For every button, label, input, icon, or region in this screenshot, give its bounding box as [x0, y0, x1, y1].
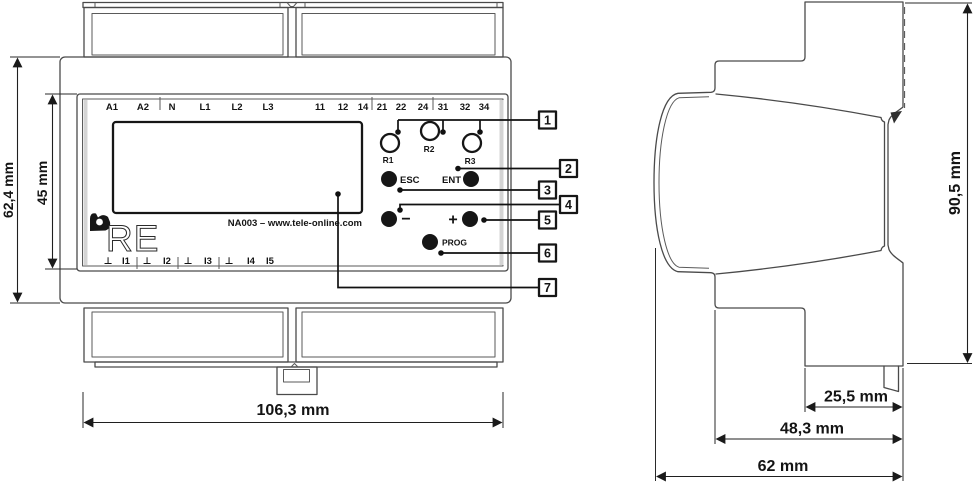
terminal-label: I5	[266, 256, 275, 267]
side-slant-faces	[716, 94, 885, 274]
terminal-label: 14	[358, 102, 369, 113]
relay-r1-label: R1	[383, 155, 394, 165]
callout-7-number: 7	[544, 281, 551, 295]
callout-4-number: 4	[565, 198, 572, 212]
drawing-svg: A1 A2 N L1 L2 L3 11 12 14 21 22 24 31 32…	[0, 0, 973, 482]
terminal-label: ⊥	[104, 256, 113, 267]
terminal-label: 32	[460, 102, 471, 113]
minus-sign: −	[401, 211, 410, 228]
side-view: 90,5 mm 25,5 mm 48,3 mm 62 mm	[654, 2, 972, 481]
terminal-label: 22	[396, 102, 407, 113]
bottom-cover-right	[296, 308, 503, 362]
side-housing	[654, 2, 905, 392]
technical-drawing-page: A1 A2 N L1 L2 L3 11 12 14 21 22 24 31 32…	[0, 0, 973, 482]
terminal-label: 12	[338, 102, 349, 113]
relay-r3-indicator	[463, 134, 481, 152]
esc-button-label: ESC	[400, 175, 420, 186]
brand-text: RE	[106, 218, 159, 259]
ent-button-label: ENT	[442, 175, 461, 186]
bottom-cover-right-inner	[302, 312, 495, 357]
callout-2-number: 2	[565, 162, 572, 176]
leader-dot	[440, 129, 446, 135]
callouts: 1 2 3 4 5 6 7	[335, 112, 577, 297]
dim-side-height-label: 90,5 mm	[947, 151, 964, 215]
dim-mid-depth-label: 48,3 mm	[780, 421, 844, 438]
relay-r2-indicator	[421, 122, 439, 140]
product-note: NA003 – www.tele-online.com	[228, 218, 362, 229]
lcd-display: NA003 – www.tele-online.com	[113, 122, 362, 229]
dim-width-label: 106,3 mm	[257, 402, 330, 419]
rail-hook-top	[891, 111, 903, 124]
relay-indicators: R1 R2 R3	[381, 122, 481, 166]
terminal-label: 21	[377, 102, 388, 113]
terminal-label: L1	[199, 102, 211, 113]
dim-total-depth-label: 62 mm	[758, 458, 809, 475]
esc-button	[381, 171, 397, 187]
plus-button	[462, 211, 478, 227]
terminal-label: ⊥	[143, 256, 152, 267]
leader-dot	[397, 207, 403, 213]
leader-line-7	[338, 194, 539, 288]
bottom-cover-left-inner	[92, 312, 283, 357]
terminal-labels-bottom: ⊥ I1 ⊥ I2 ⊥ I3 ⊥ I4 I5	[104, 256, 275, 269]
leader-dot	[481, 217, 487, 223]
terminal-label: 31	[438, 102, 449, 113]
leader-dot	[438, 250, 444, 256]
minus-button	[381, 211, 397, 227]
front-housing	[60, 3, 511, 395]
side-outline	[654, 2, 903, 366]
panel-groove-right	[500, 100, 504, 265]
prog-button	[422, 234, 438, 250]
relay-r3-label: R3	[465, 156, 476, 166]
terminal-label: I4	[247, 256, 256, 267]
terminal-label: 11	[315, 102, 326, 113]
brand-logo: RE	[90, 213, 159, 259]
depth-extension-lines	[656, 248, 904, 481]
leader-line-1	[398, 120, 539, 132]
terminal-label: L2	[231, 102, 242, 113]
brand-icon-cutout	[96, 219, 103, 226]
leader-dot	[455, 166, 461, 172]
terminal-label: A1	[106, 102, 119, 113]
leader-dot	[395, 129, 401, 135]
control-buttons: ESC ENT − + PROG	[381, 171, 479, 250]
callout-3-number: 3	[544, 184, 551, 198]
dim-height-label: 62,4 mm	[0, 162, 16, 218]
terminal-label: I1	[122, 256, 131, 267]
terminal-label: L3	[262, 102, 273, 113]
ent-button	[463, 171, 479, 187]
dim-rear-depth-label: 25,5 mm	[824, 389, 888, 406]
leader-dot	[477, 129, 483, 135]
callout-1-number: 1	[544, 114, 551, 128]
terminal-label: I2	[163, 256, 171, 267]
relay-r1-indicator	[381, 134, 399, 152]
top-cover-left	[84, 8, 288, 58]
leader-dot	[335, 191, 341, 197]
leader-dot	[397, 187, 403, 193]
top-cover-right-inner	[302, 14, 495, 56]
side-dimensions: 90,5 mm 25,5 mm 48,3 mm 62 mm	[656, 3, 973, 481]
din-clip-tab-inner	[284, 370, 310, 383]
leader-line-4	[400, 205, 560, 211]
plus-sign: +	[448, 212, 457, 229]
panel-groove-left	[84, 100, 88, 265]
dim-panel-height-label: 45 mm	[34, 161, 50, 205]
front-view: A1 A2 N L1 L2 L3 11 12 14 21 22 24 31 32…	[0, 3, 577, 429]
top-cover-right	[296, 8, 503, 58]
prog-button-label: PROG	[442, 238, 467, 248]
callout-6-number: 6	[544, 247, 551, 261]
lcd-display-outline	[113, 122, 362, 213]
side-front-inner-line	[659, 97, 709, 268]
callout-5-number: 5	[544, 214, 551, 228]
terminal-label: ⊥	[225, 256, 234, 267]
terminal-label: N	[169, 102, 176, 113]
terminal-label: ⊥	[184, 256, 193, 267]
relay-r2-label: R2	[424, 144, 435, 154]
bottom-cover-left	[84, 308, 288, 362]
terminal-label: 24	[418, 102, 429, 113]
terminal-label: A2	[137, 102, 149, 113]
top-cover-left-inner	[92, 14, 283, 56]
terminal-label: I3	[204, 256, 212, 267]
terminal-label: 34	[479, 102, 490, 113]
